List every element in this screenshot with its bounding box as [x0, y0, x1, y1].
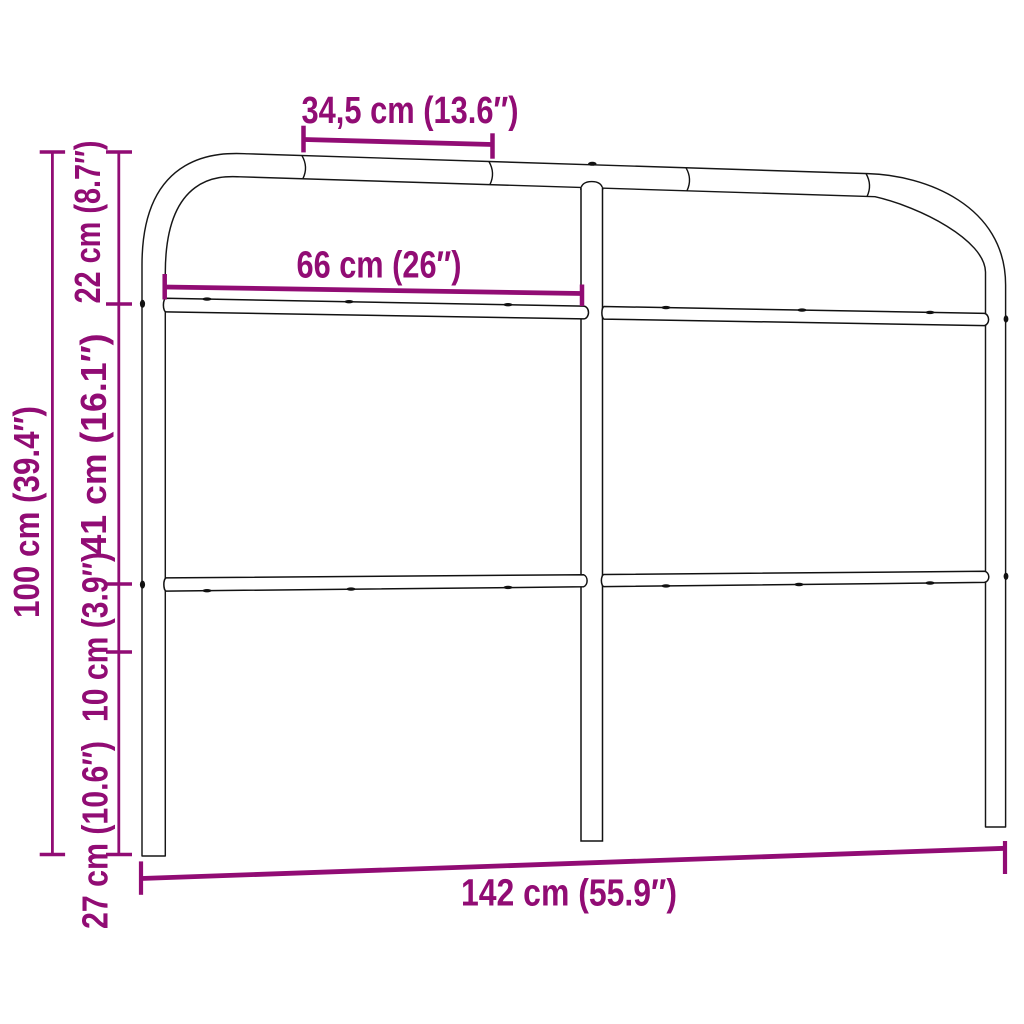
svg-text:34,5 cm (13.6″): 34,5 cm (13.6″)	[302, 90, 519, 132]
svg-text:100 cm (39.4″): 100 cm (39.4″)	[6, 406, 47, 618]
svg-text:41 cm (16.1″): 41 cm (16.1″)	[73, 334, 114, 555]
svg-text:27 cm (10.6″): 27 cm (10.6″)	[75, 741, 116, 929]
svg-text:22 cm (8.7″): 22 cm (8.7″)	[67, 141, 108, 304]
svg-text:142 cm (55.9″): 142 cm (55.9″)	[461, 873, 677, 915]
svg-text:66 cm (26″): 66 cm (26″)	[297, 245, 462, 287]
svg-text:10 cm (3.9″): 10 cm (3.9″)	[75, 552, 116, 722]
